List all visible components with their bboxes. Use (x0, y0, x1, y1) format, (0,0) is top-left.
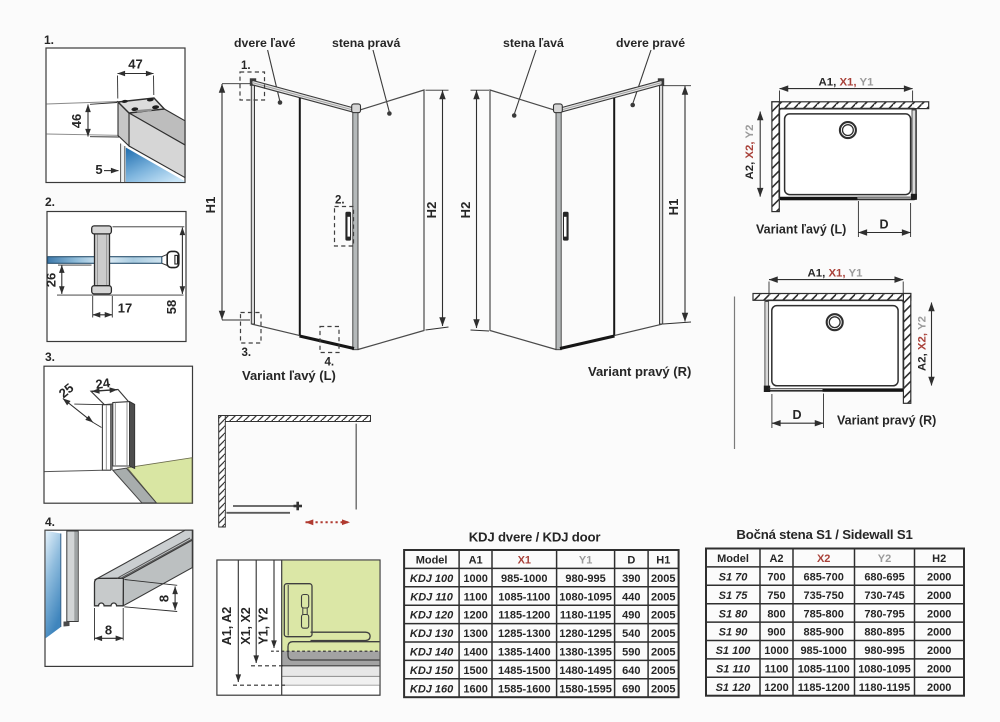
svg-text:1585-1600: 1585-1600 (498, 683, 551, 695)
svg-text:58: 58 (164, 300, 179, 314)
svg-text:1.: 1. (44, 33, 54, 47)
svg-text:700: 700 (767, 572, 785, 584)
svg-text:KDJ 150: KDJ 150 (410, 665, 454, 677)
svg-text:H1: H1 (666, 199, 681, 216)
svg-text:H1: H1 (203, 197, 218, 214)
svg-text:1000: 1000 (764, 645, 788, 657)
svg-text:490: 490 (622, 610, 640, 622)
svg-text:1500: 1500 (463, 665, 487, 677)
svg-text:S1 75: S1 75 (719, 590, 749, 602)
svg-text:S1 90: S1 90 (719, 627, 749, 639)
svg-text:2000: 2000 (927, 682, 951, 694)
svg-text:750: 750 (767, 590, 785, 602)
svg-text:440: 440 (622, 591, 640, 603)
svg-text:2000: 2000 (927, 590, 951, 602)
svg-text:Variant ľavý (L): Variant ľavý (L) (756, 223, 846, 237)
svg-text:D: D (627, 555, 635, 567)
svg-text:1180-1195: 1180-1195 (560, 610, 611, 622)
svg-text:1580-1595: 1580-1595 (559, 683, 612, 695)
svg-text:800: 800 (767, 608, 785, 620)
svg-text:1100: 1100 (464, 591, 488, 603)
svg-text:8: 8 (157, 595, 172, 602)
svg-text:1185-1200: 1185-1200 (798, 682, 850, 694)
svg-text:Variant ľavý (L): Variant ľavý (L) (242, 368, 336, 383)
svg-text:690: 690 (622, 683, 640, 695)
svg-text:46: 46 (69, 114, 84, 128)
svg-text:KDJ 140: KDJ 140 (410, 647, 454, 659)
svg-text:3.: 3. (45, 350, 55, 364)
svg-text:Model: Model (416, 555, 448, 567)
svg-text:2005: 2005 (651, 683, 675, 695)
svg-text:47: 47 (128, 57, 142, 72)
svg-text:2000: 2000 (927, 627, 951, 639)
svg-text:stena ľavá: stena ľavá (503, 36, 564, 50)
svg-text:dvere pravé: dvere pravé (616, 36, 685, 50)
svg-text:5: 5 (95, 162, 102, 177)
svg-text:H2: H2 (458, 202, 473, 219)
svg-text:KDJ 130: KDJ 130 (410, 628, 454, 640)
svg-text:1185-1200: 1185-1200 (498, 610, 550, 622)
svg-text:1085-1100: 1085-1100 (498, 591, 550, 603)
svg-text:stena pravá: stena pravá (332, 36, 401, 50)
svg-text:Y2: Y2 (878, 553, 891, 565)
svg-text:26: 26 (44, 273, 59, 287)
svg-text:880-895: 880-895 (864, 627, 904, 639)
svg-text:680-695: 680-695 (864, 572, 904, 584)
svg-text:390: 390 (622, 573, 640, 585)
svg-text:X1: X1 (518, 555, 531, 567)
svg-text:KDJ 100: KDJ 100 (410, 573, 454, 585)
svg-text:KDJ 120: KDJ 120 (410, 610, 454, 622)
svg-text:KDJ 160: KDJ 160 (410, 683, 454, 695)
svg-text:Variant pravý (R): Variant pravý (R) (588, 364, 691, 379)
svg-text:S1 120: S1 120 (716, 682, 752, 694)
svg-text:KDJ dvere / KDJ door: KDJ dvere / KDJ door (469, 530, 601, 545)
svg-text:730-745: 730-745 (864, 590, 904, 602)
svg-text:2000: 2000 (927, 608, 951, 620)
svg-text:8: 8 (105, 623, 112, 638)
svg-text:2.: 2. (335, 195, 345, 207)
svg-text:1400: 1400 (463, 647, 487, 659)
svg-text:Variant pravý (R): Variant pravý (R) (837, 414, 936, 428)
svg-text:780-795: 780-795 (864, 608, 904, 620)
svg-text:1100: 1100 (765, 664, 789, 676)
svg-text:985-1000: 985-1000 (800, 645, 847, 657)
svg-text:D: D (879, 218, 888, 232)
svg-text:885-900: 885-900 (804, 627, 844, 639)
svg-text:S1 110: S1 110 (716, 664, 751, 676)
svg-text:980-995: 980-995 (565, 573, 605, 585)
svg-text:590: 590 (622, 647, 640, 659)
svg-text:1080-1095: 1080-1095 (858, 664, 911, 676)
svg-text:Y1: Y1 (579, 555, 592, 567)
svg-text:2005: 2005 (651, 573, 675, 585)
svg-text:KDJ 110: KDJ 110 (410, 591, 453, 603)
svg-text:640: 640 (622, 665, 640, 677)
svg-text:A1, A2: A1, A2 (220, 607, 234, 645)
svg-text:3.: 3. (242, 347, 252, 359)
svg-text:4.: 4. (45, 515, 55, 529)
svg-text:2005: 2005 (651, 610, 675, 622)
svg-text:1200: 1200 (463, 610, 487, 622)
svg-text:24: 24 (95, 375, 112, 392)
svg-text:1600: 1600 (463, 683, 487, 695)
svg-text:2005: 2005 (651, 591, 675, 603)
svg-text:980-995: 980-995 (864, 645, 904, 657)
svg-text:735-750: 735-750 (804, 590, 844, 602)
svg-text:985-1000: 985-1000 (501, 573, 548, 585)
svg-text:S1 80: S1 80 (719, 608, 749, 620)
svg-text:1300: 1300 (463, 628, 487, 640)
svg-text:2005: 2005 (651, 665, 675, 677)
svg-text:2000: 2000 (927, 572, 951, 584)
svg-text:1.: 1. (241, 60, 251, 72)
svg-text:1380-1395: 1380-1395 (559, 647, 612, 659)
svg-text:2000: 2000 (927, 664, 951, 676)
svg-text:A1, X1, Y1: A1, X1, Y1 (808, 268, 864, 280)
svg-text:785-800: 785-800 (804, 608, 844, 620)
svg-text:X1, X2: X1, X2 (239, 607, 253, 645)
svg-text:H2: H2 (932, 553, 946, 565)
svg-text:A1, X1, Y1: A1, X1, Y1 (819, 77, 875, 89)
svg-text:1285-1300: 1285-1300 (498, 628, 551, 640)
svg-text:A1: A1 (469, 555, 483, 567)
svg-text:1180-1195: 1180-1195 (859, 682, 910, 694)
svg-text:1080-1095: 1080-1095 (559, 591, 612, 603)
svg-text:2000: 2000 (927, 645, 951, 657)
svg-text:dvere ľavé: dvere ľavé (234, 36, 296, 50)
svg-text:S1 70: S1 70 (719, 572, 749, 584)
svg-text:1480-1495: 1480-1495 (559, 665, 612, 677)
svg-text:X2: X2 (817, 553, 830, 565)
svg-text:Bočná stena S1 / Sidewall S1: Bočná stena S1 / Sidewall S1 (736, 527, 912, 542)
svg-text:2005: 2005 (651, 628, 675, 640)
svg-text:685-700: 685-700 (804, 572, 844, 584)
svg-text:1280-1295: 1280-1295 (559, 628, 612, 640)
svg-text:1385-1400: 1385-1400 (498, 647, 551, 659)
svg-text:1200: 1200 (764, 682, 788, 694)
svg-text:Model: Model (717, 553, 749, 565)
svg-text:A2, X2, Y2: A2, X2, Y2 (744, 125, 756, 180)
svg-text:2005: 2005 (651, 647, 675, 659)
svg-text:S1 100: S1 100 (716, 645, 752, 657)
svg-text:H2: H2 (424, 202, 439, 219)
svg-text:1000: 1000 (463, 573, 487, 585)
svg-text:H1: H1 (656, 555, 670, 567)
svg-text:17: 17 (118, 301, 132, 316)
svg-text:1085-1100: 1085-1100 (798, 664, 850, 676)
svg-text:D: D (792, 408, 801, 422)
svg-text:A2: A2 (769, 553, 783, 565)
svg-text:Y1, Y2: Y1, Y2 (256, 607, 270, 644)
svg-text:1485-1500: 1485-1500 (498, 665, 551, 677)
svg-text:2.: 2. (45, 195, 55, 209)
svg-text:900: 900 (767, 627, 785, 639)
svg-text:4.: 4. (325, 357, 335, 369)
svg-text:A2, X2, Y2: A2, X2, Y2 (917, 316, 929, 371)
svg-text:540: 540 (622, 628, 640, 640)
